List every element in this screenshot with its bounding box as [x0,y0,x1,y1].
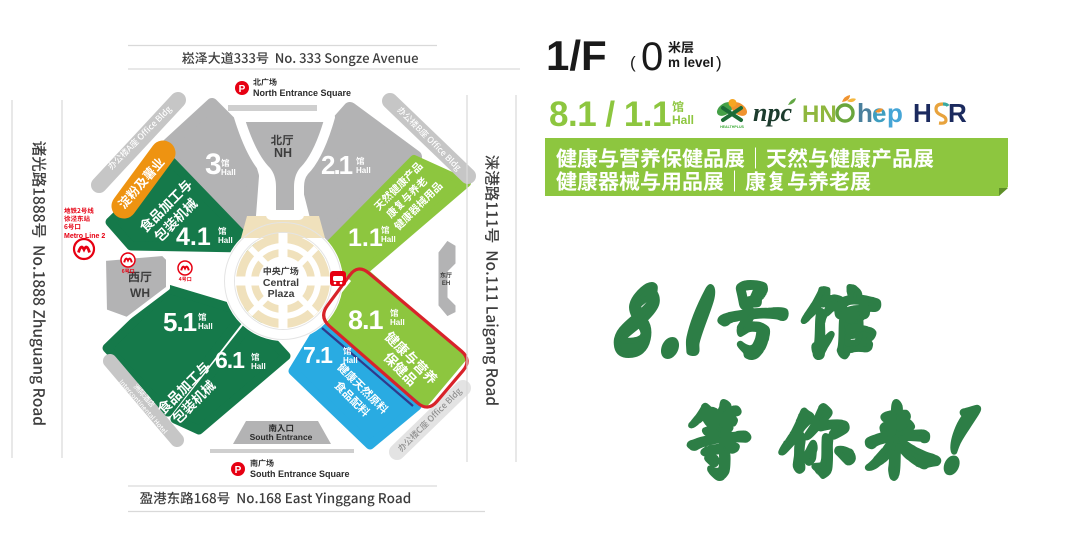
svg-text:Hall: Hall [390,318,405,327]
svg-text:WH: WH [130,286,150,300]
svg-text:P: P [235,465,242,476]
svg-text:8.1: 8.1 [348,305,384,335]
svg-text:South Entrance Square: South Entrance Square [250,469,350,479]
svg-text:m level: m level [668,55,714,70]
svg-text:Hall: Hall [356,166,371,175]
svg-text:Metro Line 2: Metro Line 2 [64,233,105,240]
svg-text:5.1: 5.1 [163,307,197,337]
svg-text:Hall: Hall [198,322,213,331]
svg-text:8.1 / 1.1: 8.1 / 1.1 [549,95,671,134]
svg-text:e: e [872,98,886,128]
svg-text:R: R [948,98,967,128]
svg-text:6.1: 6.1 [215,347,245,373]
svg-text:P: P [239,84,246,95]
svg-text:1/F: 1/F [546,32,607,79]
svg-text:North Entrance Square: North Entrance Square [253,88,351,98]
svg-text:(: ( [630,53,636,72]
svg-text:): ) [716,53,722,72]
svg-text:Plaza: Plaza [268,288,295,300]
svg-text:NH: NH [274,146,292,160]
svg-text:H: H [913,98,932,128]
svg-text:Hall: Hall [251,362,266,371]
svg-text:South Entrance: South Entrance [250,432,313,442]
svg-text:2.1: 2.1 [321,150,353,180]
svg-text:p: p [887,98,903,128]
svg-text:1.1: 1.1 [348,224,383,252]
svg-text:7.1: 7.1 [303,342,333,368]
svg-text:4.1: 4.1 [176,223,211,251]
svg-text:Hall: Hall [218,236,233,245]
svg-text:Hall: Hall [381,235,396,244]
svg-text:EH: EH [442,281,450,287]
svg-text:h: h [857,98,873,128]
svg-text:HEALTHPLUS: HEALTHPLUS [720,125,744,129]
svg-text:Hall: Hall [221,168,236,177]
svg-text:0: 0 [641,35,663,79]
svg-text:Hall: Hall [672,113,694,127]
svg-text:npc: npc [753,98,792,127]
svg-text:3: 3 [205,148,222,181]
svg-text:HN: HN [802,101,837,128]
